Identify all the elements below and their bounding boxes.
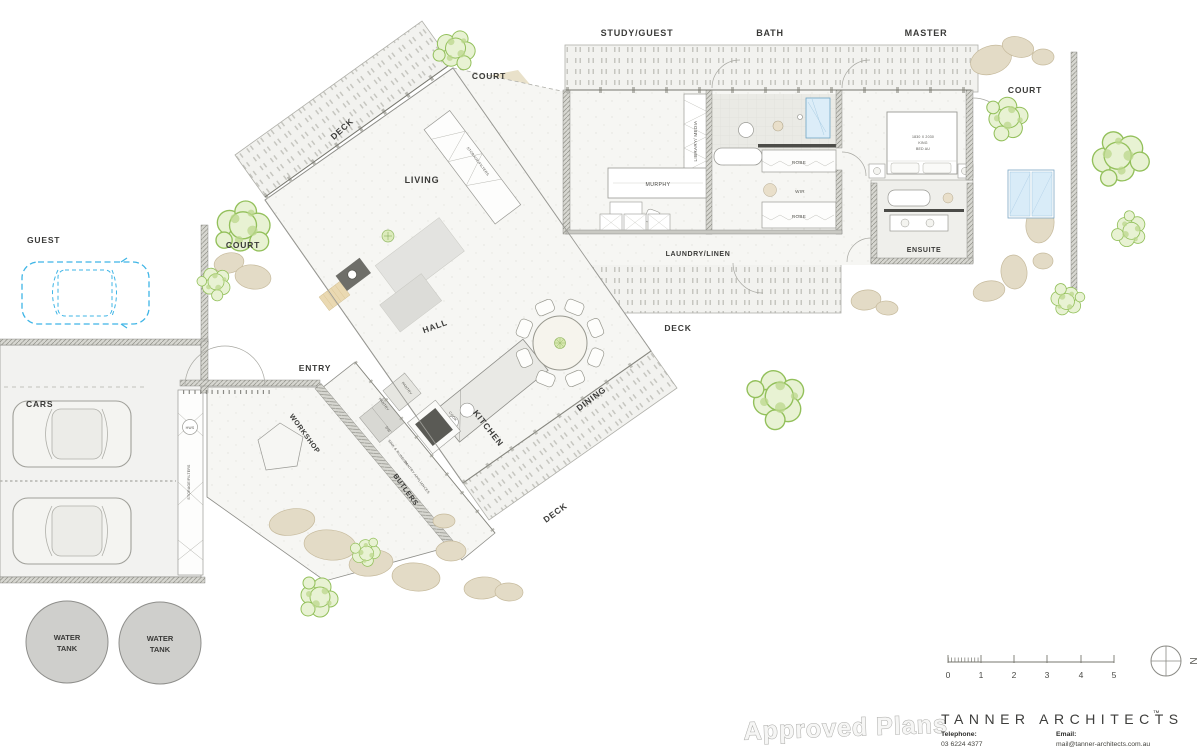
title-block: Approved Plans TANNER ARCHITECTS ™ Telep… [743,710,1183,748]
approved-plans-watermark: Approved Plans [743,710,948,745]
deck-bedroom-north [565,45,978,92]
label-library-media: LIBRARY/ MEDIA [693,120,698,162]
label-bed-size: 1830 X 2030 [912,135,934,139]
label-bed-au: BED AU [916,147,930,151]
email-address: mail@tanner-architects.com.au [1056,741,1150,748]
guest-car [22,258,149,328]
label-murphy: MURPHY [646,182,671,188]
label-deck-middle: DECK [664,323,691,333]
north-arrow: N [1151,646,1198,676]
car-1 [13,401,131,467]
laundry-strip-floor [566,232,871,265]
label-study-guest: STUDY/GUEST [601,28,674,38]
scale-tick-0: 0 [946,670,951,680]
label-water-tank-1a: WATER [54,633,81,642]
floor-plan-drawing: STUDY/GUEST BATH MASTER COURT COURT COUR… [0,0,1200,751]
label-entry: ENTRY [299,363,332,373]
label-storage-filters-garage: STORAGE/FILTERS [187,464,191,500]
email-label: Email: [1056,731,1076,738]
car-2 [13,498,131,564]
north-label: N [1187,657,1198,664]
label-wir: WIR [795,189,805,194]
scale-tick-5: 5 [1112,670,1117,680]
telephone-number: 03 6224 4377 [941,741,983,748]
laundry-appliances [600,214,670,231]
label-master: MASTER [905,28,948,38]
bathtub [714,148,762,165]
label-robe-1: ROBE [792,160,806,165]
label-guest-parking: GUEST [27,235,60,245]
label-cars: CARS [26,399,53,409]
label-hws: HWS [186,426,195,430]
label-water-tank-2b: TANK [150,645,171,654]
water-tank-2 [119,602,201,684]
label-court-right: COURT [1008,85,1042,95]
scale-tick-4: 4 [1079,670,1084,680]
floor-plan-canvas: STUDY/GUEST BATH MASTER COURT COURT COUR… [0,0,1200,751]
label-court-left: COURT [226,240,260,250]
brand-trademark: ™ [1153,710,1160,717]
basin [739,123,754,138]
shower [806,98,830,138]
label-court-top: COURT [472,71,506,81]
label-water-tank-2a: WATER [147,634,174,643]
label-deck-southeast: DECK [541,500,569,524]
brand-name: TANNER ARCHITECTS [941,711,1184,727]
wc [773,121,783,131]
label-water-tank-1b: TANK [57,644,78,653]
scale-bar: 0 1 2 3 4 5 [946,655,1117,680]
telephone-label: Telephone: [941,731,977,738]
scale-tick-1: 1 [979,670,984,680]
court-window [1008,170,1054,218]
label-living: LIVING [405,175,440,185]
water-tank-1 [26,601,108,683]
label-ensuite: ENSUITE [907,247,942,254]
label-bed-king: KING [918,141,927,145]
label-bath: BATH [756,28,784,38]
scale-tick-2: 2 [1012,670,1017,680]
label-robe-2: ROBE [792,214,806,219]
label-laundry-linen: LAUNDRY/LINEN [666,251,731,258]
scale-tick-3: 3 [1045,670,1050,680]
